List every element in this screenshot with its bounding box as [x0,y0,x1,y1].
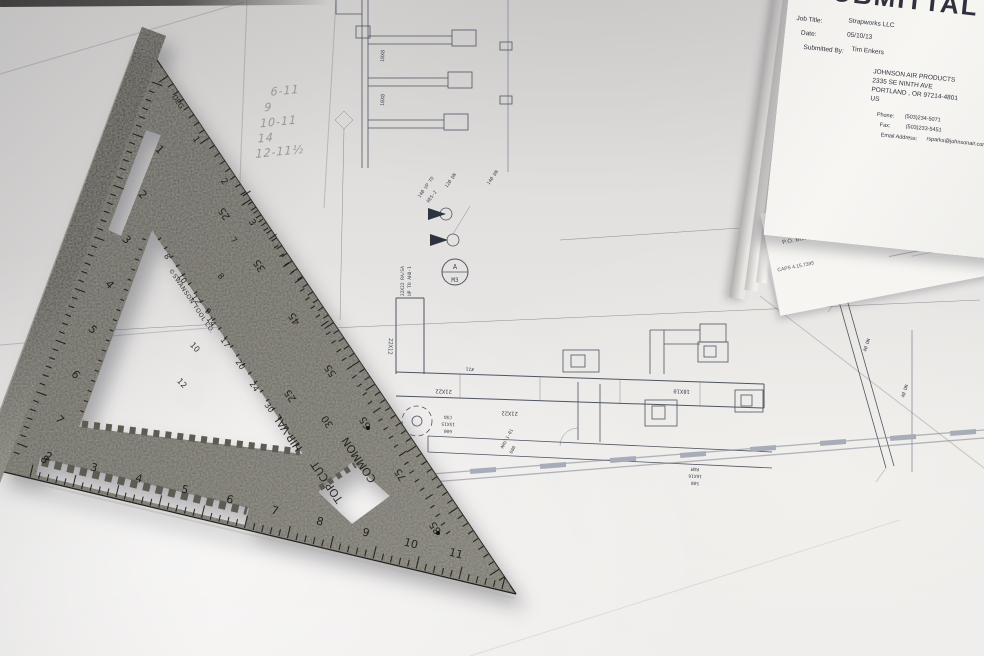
submittal-sheet: SUBMITTAL Job Title: Strapworks LLC Date… [764,0,984,260]
contact-label: Email Address: [880,132,917,142]
contact-label: Phone: [876,112,894,120]
drill-dot [436,531,440,535]
field-value: 05/10/13 [847,31,873,41]
contact-value: rsparks@johnsonair.com [926,136,984,148]
field-label: Date: [801,30,817,39]
field-value: Strapworks LLC [848,17,895,29]
field-value: Tim Enkers [851,46,884,56]
field-label: Job Title: [796,15,823,25]
contact-label: Fax: [879,122,890,129]
contact-value: (503)234-5071 [904,114,941,124]
photo-blueprint-scene: { "submittal": { "title": "SUBMITTAL", "… [0,0,984,656]
submittal-title: SUBMITTAL [812,0,981,23]
svg-text:10: 10 [188,341,202,355]
drill-dot [366,426,370,430]
square-body [0,27,516,594]
field-label: Submitted By: [803,44,844,55]
company-block: JOHNSON AIR PRODUCTS 2335 SE NINTH AVE P… [870,67,960,112]
svg-text:8: 8 [162,252,172,261]
svg-text:12: 12 [175,377,189,391]
caps-code: CAPS 4.15.7395 [777,260,815,273]
contact-value: (503)233-5451 [905,124,942,134]
